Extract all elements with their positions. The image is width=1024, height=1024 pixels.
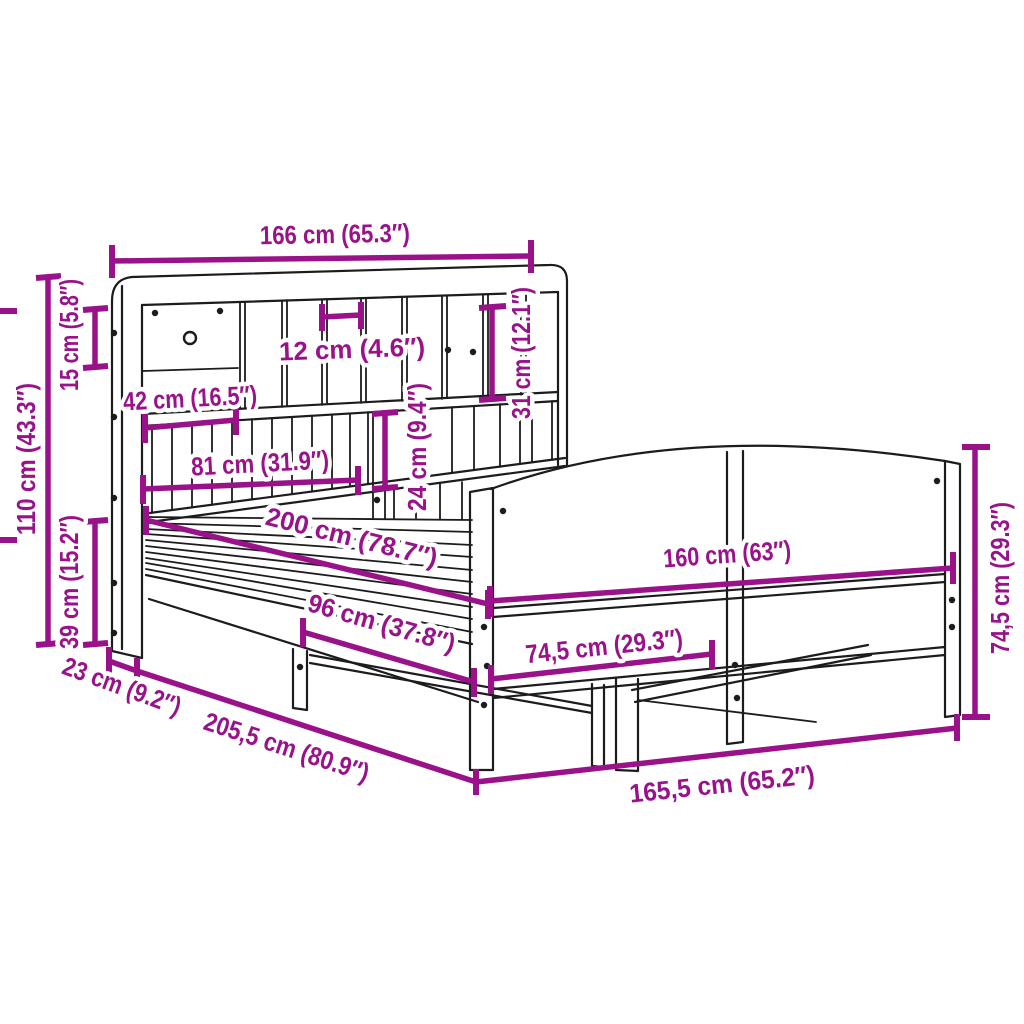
footboard xyxy=(470,446,960,770)
bed-frame-diagram-svg: 166 cm (65.3″) 15 cm (5.8″) 110 cm (43.3… xyxy=(0,0,1024,1024)
drawer-knob xyxy=(184,332,196,344)
dim-label-total-height: 110 cm (43.3″) xyxy=(11,383,41,535)
dim-label-footboard-width: 160 cm (63″) xyxy=(662,535,792,574)
dim-label-frame-total-width: 165,5 cm (65.2″) xyxy=(628,759,816,808)
dim-label-lower-height: 39 cm (15.2″) xyxy=(54,515,84,649)
dim-15 xyxy=(83,308,108,368)
dim-label-footboard-height: 74,5 cm (29.3″) xyxy=(985,502,1015,654)
headboard-drawer xyxy=(143,332,238,371)
dim-label-cubby-height-31: 31 cm (12.1″) xyxy=(506,287,536,419)
dim-label-headboard-depth: 23 cm (9.2″) xyxy=(59,651,186,722)
dimension-labels: 166 cm (65.3″) 15 cm (5.8″) 110 cm (43.3… xyxy=(11,218,1015,809)
dim-label-headboard-width: 166 cm (65.3″) xyxy=(260,218,411,251)
dimension-diagram: 166 cm (65.3″) 15 cm (5.8″) 110 cm (43.3… xyxy=(0,0,1024,1024)
dim-label-shelf-span-81: 81 cm (31.9″) xyxy=(190,444,329,481)
dim-label-mattress-width-96: 96 cm (37.8″) xyxy=(305,588,459,659)
dim-label-cubby-height-24: 24 cm (9.4″) xyxy=(402,383,432,511)
dim-label-cubby-width: 12 cm (4.6″) xyxy=(279,331,426,366)
dim-39 xyxy=(83,520,108,645)
dim-24 xyxy=(372,412,398,489)
dimension-lines xyxy=(0,240,990,795)
dim-label-top-section-height: 15 cm (5.8″) xyxy=(54,279,84,391)
